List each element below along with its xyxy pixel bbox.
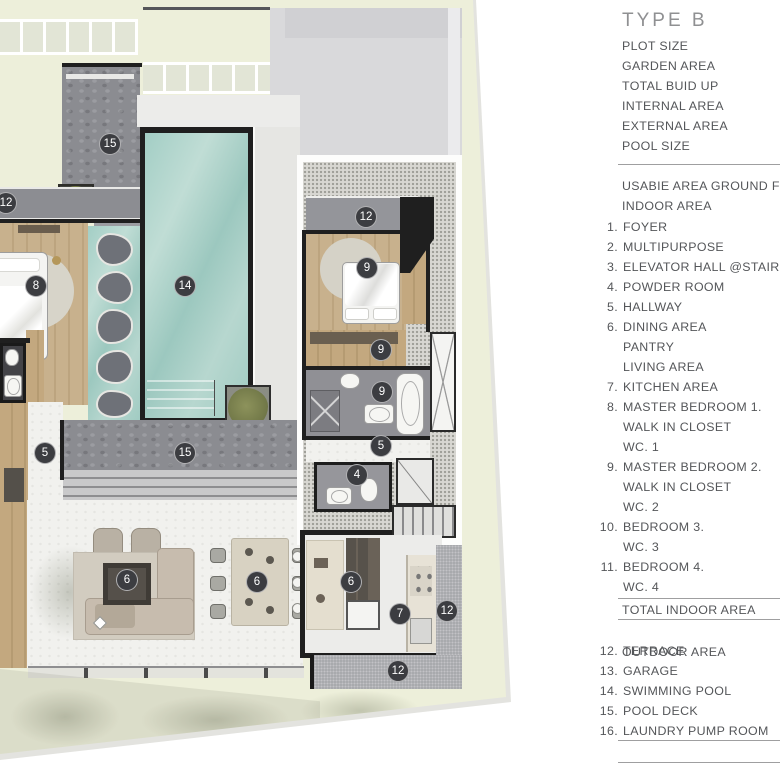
item-number: 8. <box>596 397 618 417</box>
outdoor-list: 12.TERRACE 13.GARAGE 14.SWIMMING POOL 15… <box>596 641 769 741</box>
stepping-stone <box>96 390 133 418</box>
summary-line: TOTAL BUID UP <box>622 76 728 96</box>
item-number: 7. <box>596 377 618 397</box>
usable-area-heading: USABIE AREA GROUND FL INDOOR AREA <box>622 176 780 216</box>
bathtub <box>396 373 424 435</box>
hall-cabinet <box>4 468 24 502</box>
badge-pool-deck: 15 <box>99 133 121 155</box>
badge-kitchen: 7 <box>389 603 411 625</box>
item-number: 12. <box>596 641 618 661</box>
item-label: DINING AREA <box>623 320 707 334</box>
legend-item: 12.TERRACE <box>596 641 769 661</box>
legend-item: WC. 2 <box>596 497 780 517</box>
badge-dining-area: 6 <box>246 571 268 593</box>
living-steps <box>60 470 302 500</box>
item-number: 13. <box>596 661 618 681</box>
island-item <box>314 558 328 568</box>
driveway-kerb <box>448 8 460 160</box>
deck-edge <box>66 74 134 79</box>
item-number: 2. <box>596 237 618 257</box>
badge-pool-deck-2: 15 <box>174 442 196 464</box>
item-label: KITCHEN AREA <box>623 380 718 394</box>
item-label: WC. 3 <box>623 540 659 554</box>
legend-item: WC. 4 <box>596 577 780 597</box>
divider <box>618 164 780 165</box>
legend-panel: TYPE B PLOT SIZE GARDEN AREA TOTAL BUID … <box>596 0 780 780</box>
legend-item: 4.POWDER ROOM <box>596 277 780 297</box>
shower-2 <box>310 390 340 432</box>
deck-wall <box>62 63 142 67</box>
badge-hallway-left: 5 <box>34 442 56 464</box>
indoor-list: 1.FOYER 2.MULTIPURPOSE 3.ELEVATOR HALL @… <box>596 217 780 597</box>
total-indoor: TOTAL INDOOR AREA <box>622 600 780 620</box>
toilet <box>5 349 19 366</box>
wash-basin <box>4 375 22 397</box>
badge-hallway-right: 5 <box>370 435 392 457</box>
wash-basin-pr <box>326 487 352 505</box>
badge-terrace-2: 12 <box>355 206 377 228</box>
dining-chair <box>210 576 226 591</box>
item-label: FOYER <box>623 220 667 234</box>
legend-item: 10.BEDROOM 3. <box>596 517 780 537</box>
item-label: POOL DECK <box>623 704 698 718</box>
badge-master-bedroom-1: 8 <box>25 275 47 297</box>
item-number: 10. <box>596 517 618 537</box>
legend-item: 9.MASTER BEDROOM 2. <box>596 457 780 477</box>
divider <box>618 740 780 741</box>
bed2-pillow <box>373 308 397 320</box>
driveway-shade <box>285 8 462 38</box>
item-label: PANTRY <box>623 340 674 354</box>
summary-line: INTERNAL AREA <box>622 96 728 116</box>
legend-item: 7.KITCHEN AREA <box>596 377 780 397</box>
item-label: WC. 2 <box>623 500 659 514</box>
legend-item: 13.GARAGE <box>596 661 769 681</box>
legend-item: 2.MULTIPURPOSE <box>596 237 780 257</box>
item-label: ELEVATOR HALL @STAIRS <box>623 260 780 274</box>
page-title: TYPE B <box>622 10 708 32</box>
garden-wall <box>143 7 270 10</box>
item-label: TERRACE <box>623 644 685 658</box>
item-label: LIVING AREA <box>623 360 704 374</box>
item-label: MULTIPURPOSE <box>623 240 724 254</box>
storage-room <box>396 458 434 505</box>
area-summary: PLOT SIZE GARDEN AREA TOTAL BUID UP INTE… <box>622 36 728 156</box>
badge-living-area: 6 <box>116 569 138 591</box>
badge-master-bedroom-2: 9 <box>356 257 378 279</box>
terrace-bottom <box>310 655 462 689</box>
item-number: 1. <box>596 217 618 237</box>
kitchen-sink <box>410 618 432 644</box>
pool-walkway <box>253 127 300 420</box>
item-number: 16. <box>596 721 618 741</box>
stepping-stone <box>96 271 133 304</box>
indoor-label: INDOOR AREA <box>622 196 780 216</box>
table-setting <box>266 556 274 564</box>
item-label: WALK IN CLOSET <box>623 480 731 494</box>
legend-item: 11.BEDROOM 4. <box>596 557 780 577</box>
legend-item: WC. 3 <box>596 537 780 557</box>
elevator-shaft <box>430 332 456 432</box>
usable-title: USABIE AREA GROUND FL <box>622 176 780 196</box>
stepping-stone <box>96 350 133 384</box>
summary-line: EXTERNAL AREA <box>622 116 728 136</box>
item-number: 6. <box>596 317 618 337</box>
pool-deck-upper <box>62 66 140 190</box>
staircase <box>392 505 456 538</box>
item-number: 4. <box>596 277 618 297</box>
item-number: 5. <box>596 297 618 317</box>
legend-item: 5.HALLWAY <box>596 297 780 317</box>
bedroom2-wall-right <box>426 240 430 332</box>
divider <box>618 619 780 620</box>
badge-pantry: 6 <box>340 571 362 593</box>
ceiling-fan-marker <box>52 256 61 265</box>
item-number: 15. <box>596 701 618 721</box>
item-label: BEDROOM 4. <box>623 560 704 574</box>
item-number: 14. <box>596 681 618 701</box>
legend-item: PANTRY <box>596 337 780 357</box>
cooktop <box>410 566 432 596</box>
divider <box>618 598 780 599</box>
legend-item: WALK IN CLOSET <box>596 477 780 497</box>
item-label: WC. 4 <box>623 580 659 594</box>
item-label: MASTER BEDROOM 2. <box>623 460 762 474</box>
legend-item: LIVING AREA <box>596 357 780 377</box>
fridge <box>346 600 380 630</box>
item-number: 11. <box>596 557 618 577</box>
legend-item: WC. 1 <box>596 437 780 457</box>
badge-wc-2: 9 <box>371 381 393 403</box>
summary-line: POOL SIZE <box>622 136 728 156</box>
summary-line: PLOT SIZE <box>622 36 728 56</box>
island-item <box>316 594 325 603</box>
toilet-2 <box>340 373 360 389</box>
legend-item: 8.MASTER BEDROOM 1. <box>596 397 780 417</box>
legend-item: 14.SWIMMING POOL <box>596 681 769 701</box>
left-corridor-floor <box>0 402 28 668</box>
item-label: POWDER ROOM <box>623 280 725 294</box>
pool-entry-steps <box>147 380 215 416</box>
wash-basin-2 <box>364 404 394 424</box>
summary-line: GARDEN AREA <box>622 56 728 76</box>
item-label: MASTER BEDROOM 1. <box>623 400 762 414</box>
legend-item: 1.FOYER <box>596 217 780 237</box>
badge-walk-in-closet: 9 <box>370 339 392 361</box>
wc1-wall <box>0 338 30 343</box>
hall-wall <box>60 420 64 480</box>
item-label: SWIMMING POOL <box>623 684 732 698</box>
kitchen-island <box>306 540 344 630</box>
garden-tile-path <box>0 19 138 55</box>
divider <box>618 762 780 763</box>
legend-item: 3.ELEVATOR HALL @STAIRS <box>596 257 780 277</box>
item-label: BEDROOM 3. <box>623 520 704 534</box>
badge-swimming-pool: 14 <box>174 275 196 297</box>
floorplan-page: 12 15 8 14 12 9 9 9 5 15 5 4 6 6 6 7 12 … <box>0 0 780 780</box>
legend-item: 15.POOL DECK <box>596 701 769 721</box>
item-number: 3. <box>596 257 618 277</box>
item-label: WC. 1 <box>623 440 659 454</box>
badge-terrace-4: 12 <box>387 660 409 682</box>
legend-item: WALK IN CLOSET <box>596 417 780 437</box>
legend-item: 16.LAUNDRY PUMP ROOM <box>596 721 769 741</box>
item-label: WALK IN CLOSET <box>623 420 731 434</box>
table-setting <box>245 548 253 556</box>
item-label: LAUNDRY PUMP ROOM <box>623 724 769 738</box>
bed2-pillow <box>345 308 369 320</box>
kitchen-wall-top <box>300 530 392 535</box>
badge-terrace-3: 12 <box>436 600 458 622</box>
swimming-pool <box>145 133 248 418</box>
kitchen-wall-left <box>300 530 305 658</box>
item-label: GARAGE <box>623 664 678 678</box>
item-label: HALLWAY <box>623 300 682 314</box>
table-setting <box>266 606 274 614</box>
item-number: 9. <box>596 457 618 477</box>
garden-tile-path <box>143 62 280 94</box>
dining-chair <box>210 548 226 563</box>
legend-item: 6.DINING AREA <box>596 317 780 337</box>
badge-powder-room: 4 <box>346 464 368 486</box>
bed-pillow <box>0 258 40 272</box>
dining-chair <box>210 604 226 619</box>
bedroom1-headboard <box>18 225 60 233</box>
paving-band <box>137 95 300 127</box>
table-setting <box>245 598 253 606</box>
